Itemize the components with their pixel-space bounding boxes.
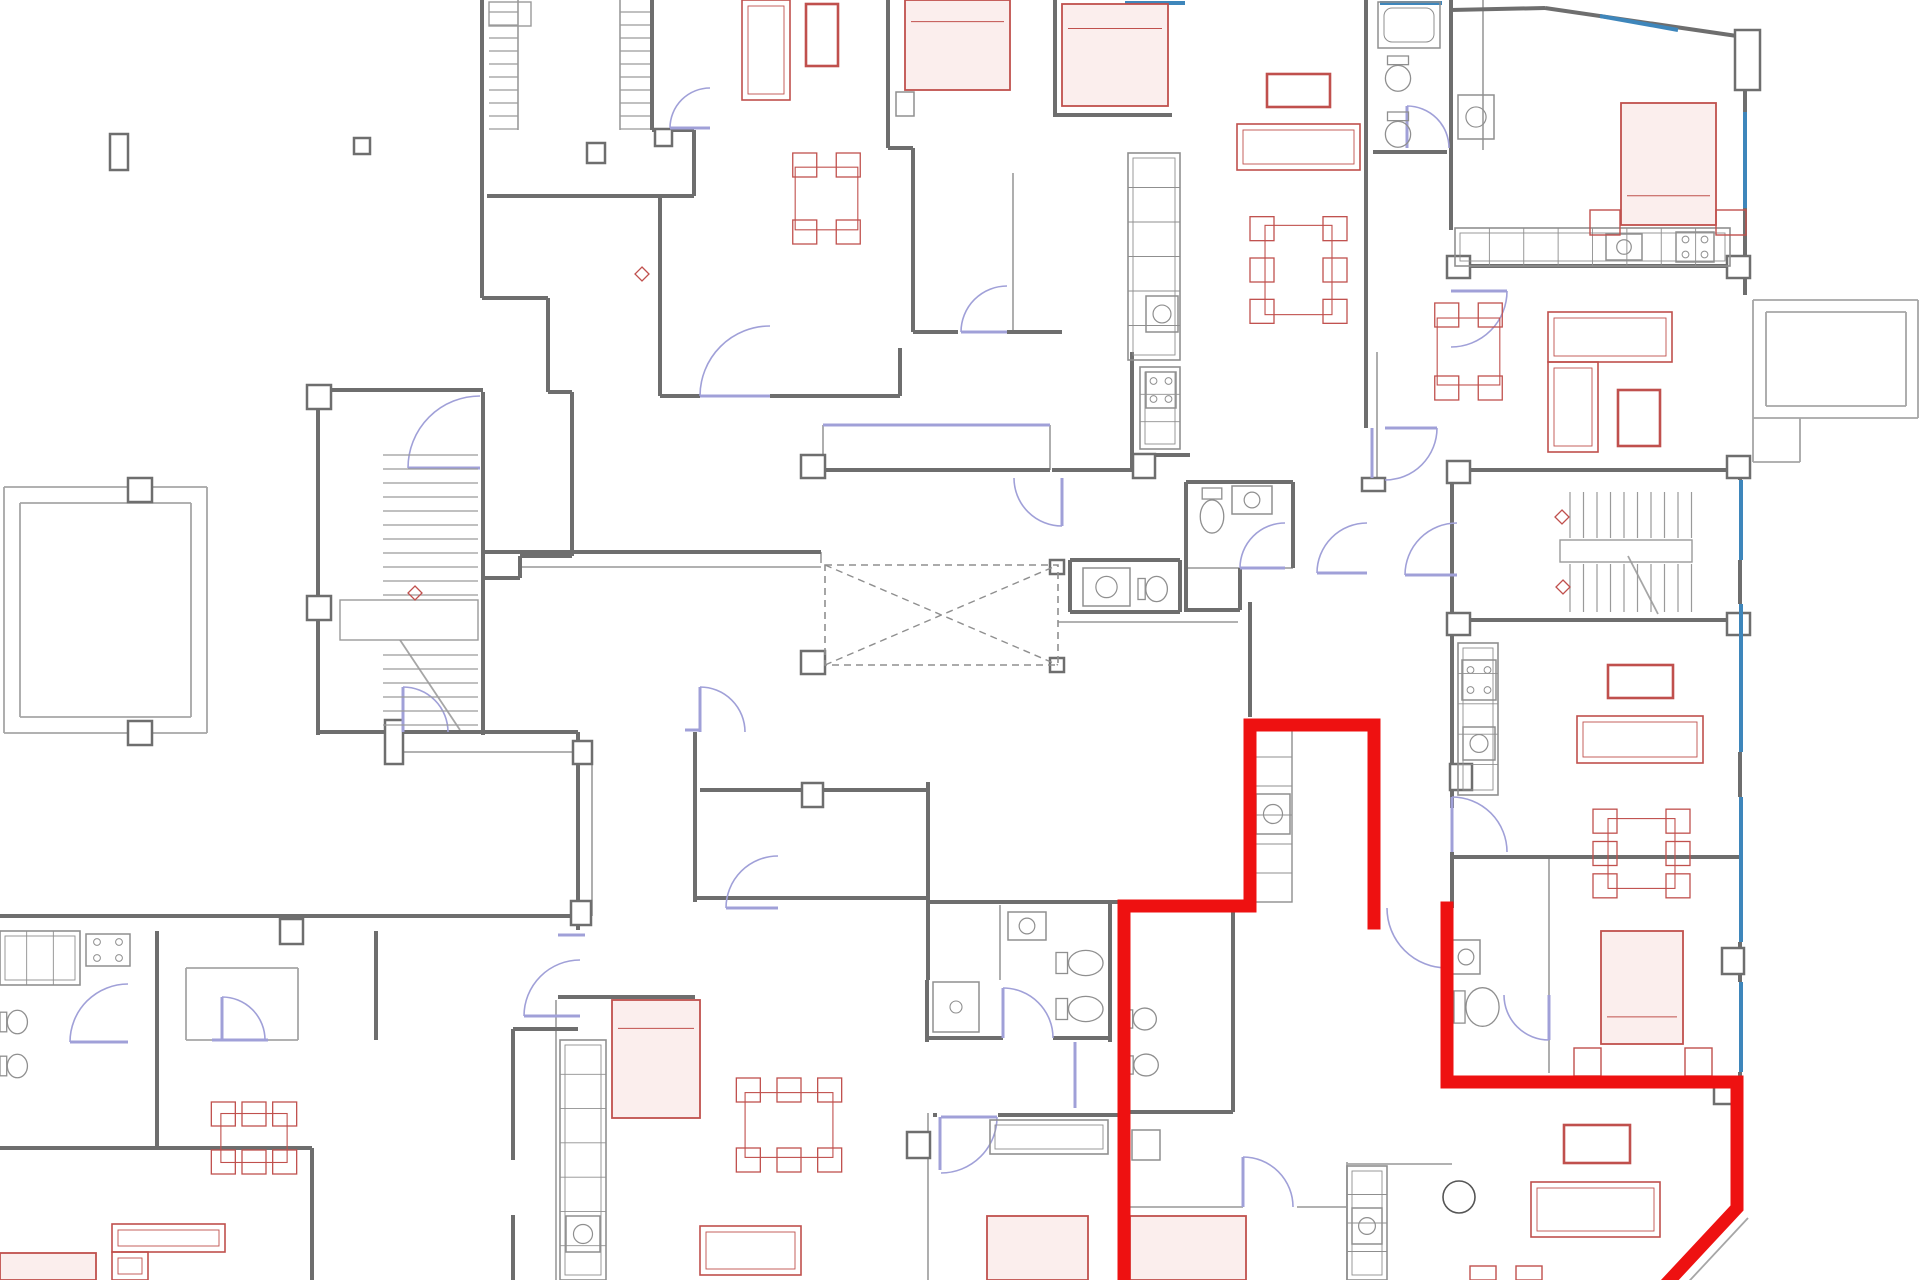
floor-plan-canvas [0,0,1920,1280]
elevator-shaft-dashed [825,565,1058,665]
architectural-floor-plan [0,0,1920,1280]
columns-layer [110,30,1760,1158]
stairs-layer [340,2,1692,725]
